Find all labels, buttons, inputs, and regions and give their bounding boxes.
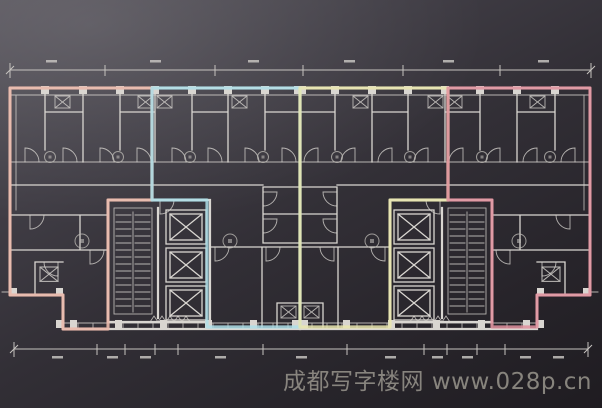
door-arc-icon — [245, 148, 259, 162]
unit-outline-right-end-pink — [448, 88, 590, 327]
door-arc-icon — [172, 148, 186, 162]
room-label-circle — [332, 152, 343, 163]
room-label-circle — [75, 234, 89, 248]
elevator-icon — [166, 248, 206, 282]
service-core — [108, 200, 210, 322]
elevator-icon — [166, 286, 206, 320]
door-arc-icon — [266, 247, 280, 261]
room-label-circle — [545, 152, 556, 163]
door-arc-icon — [90, 250, 104, 264]
room-label-circle — [185, 152, 196, 163]
room-label-circle — [512, 234, 526, 248]
door-arc-icon — [100, 148, 114, 162]
unit-outline-right-center-yellow — [300, 88, 448, 327]
floorplan-drawing: 成都写字楼网 www.028p.cn — [0, 0, 602, 408]
vent-shaft-icon — [157, 96, 172, 108]
door-arc-icon — [30, 215, 44, 229]
unit-outline-left-end-salmon — [10, 88, 152, 329]
core-outline — [108, 200, 210, 322]
elevator-icon — [166, 210, 206, 244]
door-arc-icon — [63, 148, 77, 162]
watermark-text: 成都写字楼网 www.028p.cn — [283, 369, 592, 395]
unit-outline-left-center-cyan — [152, 88, 300, 327]
room-label-circle — [223, 234, 237, 248]
room-label-circle — [258, 152, 269, 163]
vent-shaft-icon — [40, 267, 58, 281]
staircase — [114, 208, 152, 314]
door-arc-icon — [263, 192, 277, 206]
door-arc-icon — [25, 148, 39, 162]
dimension-text-marks — [46, 60, 549, 63]
door-arc-icon — [137, 148, 151, 162]
corridor-walls — [10, 185, 263, 250]
door-arc-icon — [282, 148, 296, 162]
room-label-circle — [113, 152, 124, 163]
vent-shaft-icon — [232, 96, 247, 108]
room-label-circle — [477, 152, 488, 163]
room-label-circle — [365, 234, 379, 248]
mid-lower-room-walls — [210, 247, 300, 327]
room-label-circle — [405, 152, 416, 163]
top-band-partitions — [45, 88, 300, 243]
center-room-block — [263, 187, 300, 243]
column-blocks — [10, 86, 302, 328]
door-arc-icon — [160, 200, 174, 214]
door-arc-icon — [263, 219, 277, 233]
bottom-dimension-line — [10, 342, 592, 359]
vent-shaft-icon — [281, 306, 296, 318]
door-arcs — [25, 148, 296, 276]
dimension-text-marks — [52, 356, 564, 359]
top-dimension-line — [6, 60, 595, 78]
floorplan-photo: 成都写字楼网 www.028p.cn — [0, 0, 602, 408]
room-label-circle — [45, 152, 56, 163]
vent-shaft-icon — [55, 96, 70, 108]
door-arc-icon — [208, 148, 222, 162]
door-arc-icon — [215, 247, 229, 261]
